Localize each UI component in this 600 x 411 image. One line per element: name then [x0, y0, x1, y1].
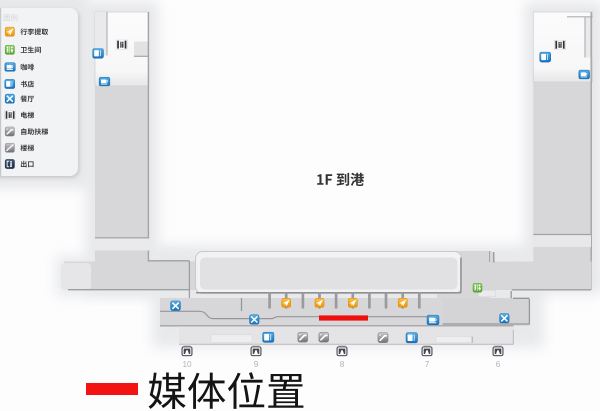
svg-text:9: 9 [254, 360, 259, 369]
svg-text:6: 6 [496, 360, 501, 369]
svg-text:8: 8 [340, 360, 345, 369]
svg-text:10: 10 [182, 360, 192, 369]
svg-text:7: 7 [425, 360, 430, 369]
